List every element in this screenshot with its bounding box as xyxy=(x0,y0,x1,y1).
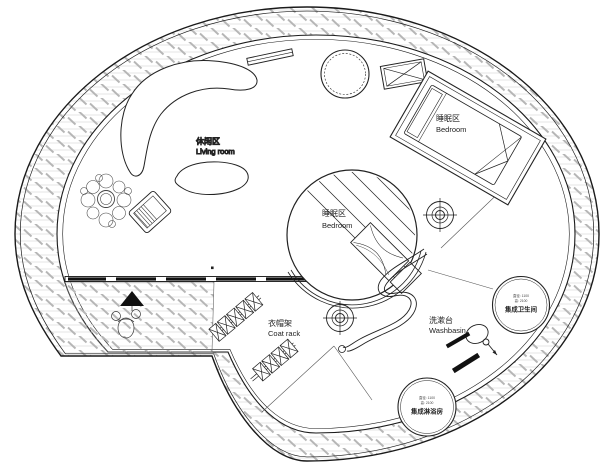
bedroom-top-label-zh: 睡眠区 xyxy=(436,114,460,123)
living-room-label-en: Living room xyxy=(196,147,235,156)
bedroom-center-label-en: Bedroom xyxy=(322,221,352,230)
coat-rack-label-en: Coat rack xyxy=(268,329,300,338)
shower-pod: 直径: 1100 高: 2100 集成淋浴房 xyxy=(398,378,456,436)
washbasin-label-zh: 洗漱台 xyxy=(429,315,453,325)
shower-pod-height: 高: 2100 xyxy=(421,400,434,405)
bathroom-pod-height: 高: 2100 xyxy=(515,298,528,303)
coat-rack-label-zh: 衣帽架 xyxy=(268,318,292,328)
round-table xyxy=(321,50,369,98)
floor-plan-canvas: 休闲区 Living room 睡眠区 Bedroom xyxy=(0,0,611,473)
shower-pod-diameter: 直径: 1100 xyxy=(419,395,435,400)
door-dot xyxy=(211,267,214,270)
bathroom-pod-name: 集成卫生间 xyxy=(504,305,537,314)
living-room-label-zh: 休闲区 xyxy=(196,136,220,146)
bathroom-pod-diameter: 直径: 1100 xyxy=(513,293,529,298)
bedroom-top-label-en: Bedroom xyxy=(436,125,466,134)
shower-pod-name: 集成淋浴房 xyxy=(410,407,444,416)
bathroom-pod: 直径: 1100 高: 2100 集成卫生间 xyxy=(493,277,550,334)
washbasin-label-en: Washbasin xyxy=(429,326,466,335)
floor-plan: 休闲区 Living room 睡眠区 Bedroom xyxy=(0,0,611,473)
bedroom-center-label-zh: 睡眠区 xyxy=(322,209,346,218)
